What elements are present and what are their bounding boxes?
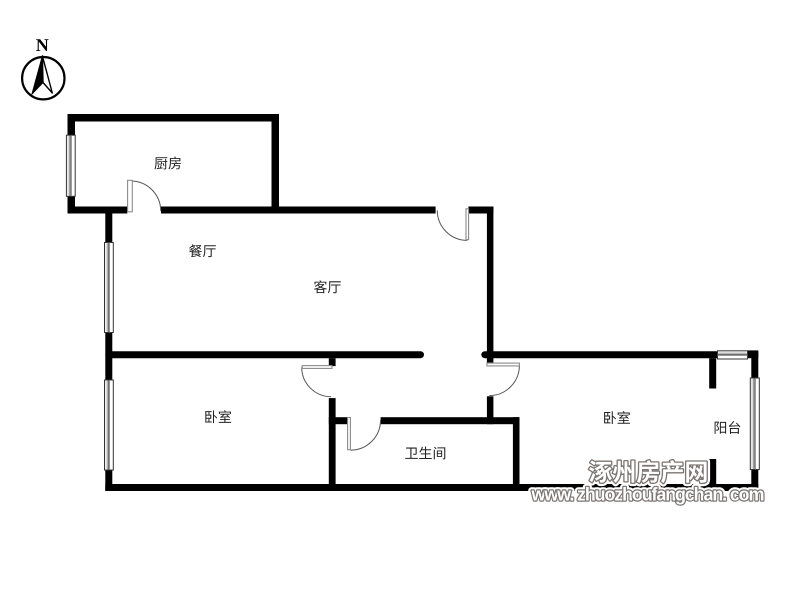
svg-text:www. zhuozhoufangchan. com: www. zhuozhoufangchan. com (531, 484, 765, 504)
